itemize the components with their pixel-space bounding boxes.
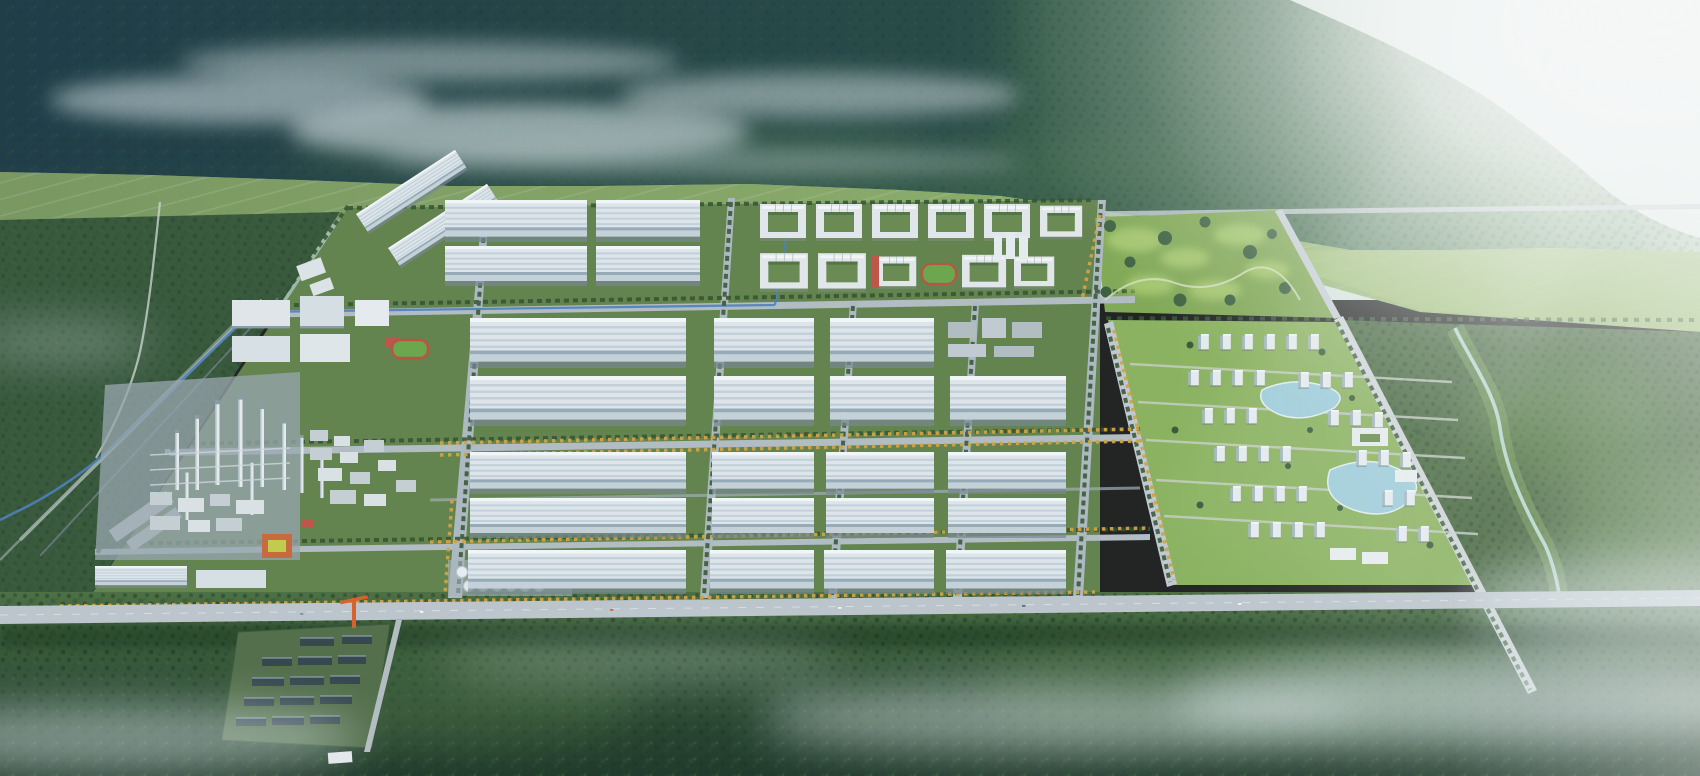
color-grade-overlay — [0, 0, 1700, 776]
aerial-render-industrial-park — [0, 0, 1700, 776]
